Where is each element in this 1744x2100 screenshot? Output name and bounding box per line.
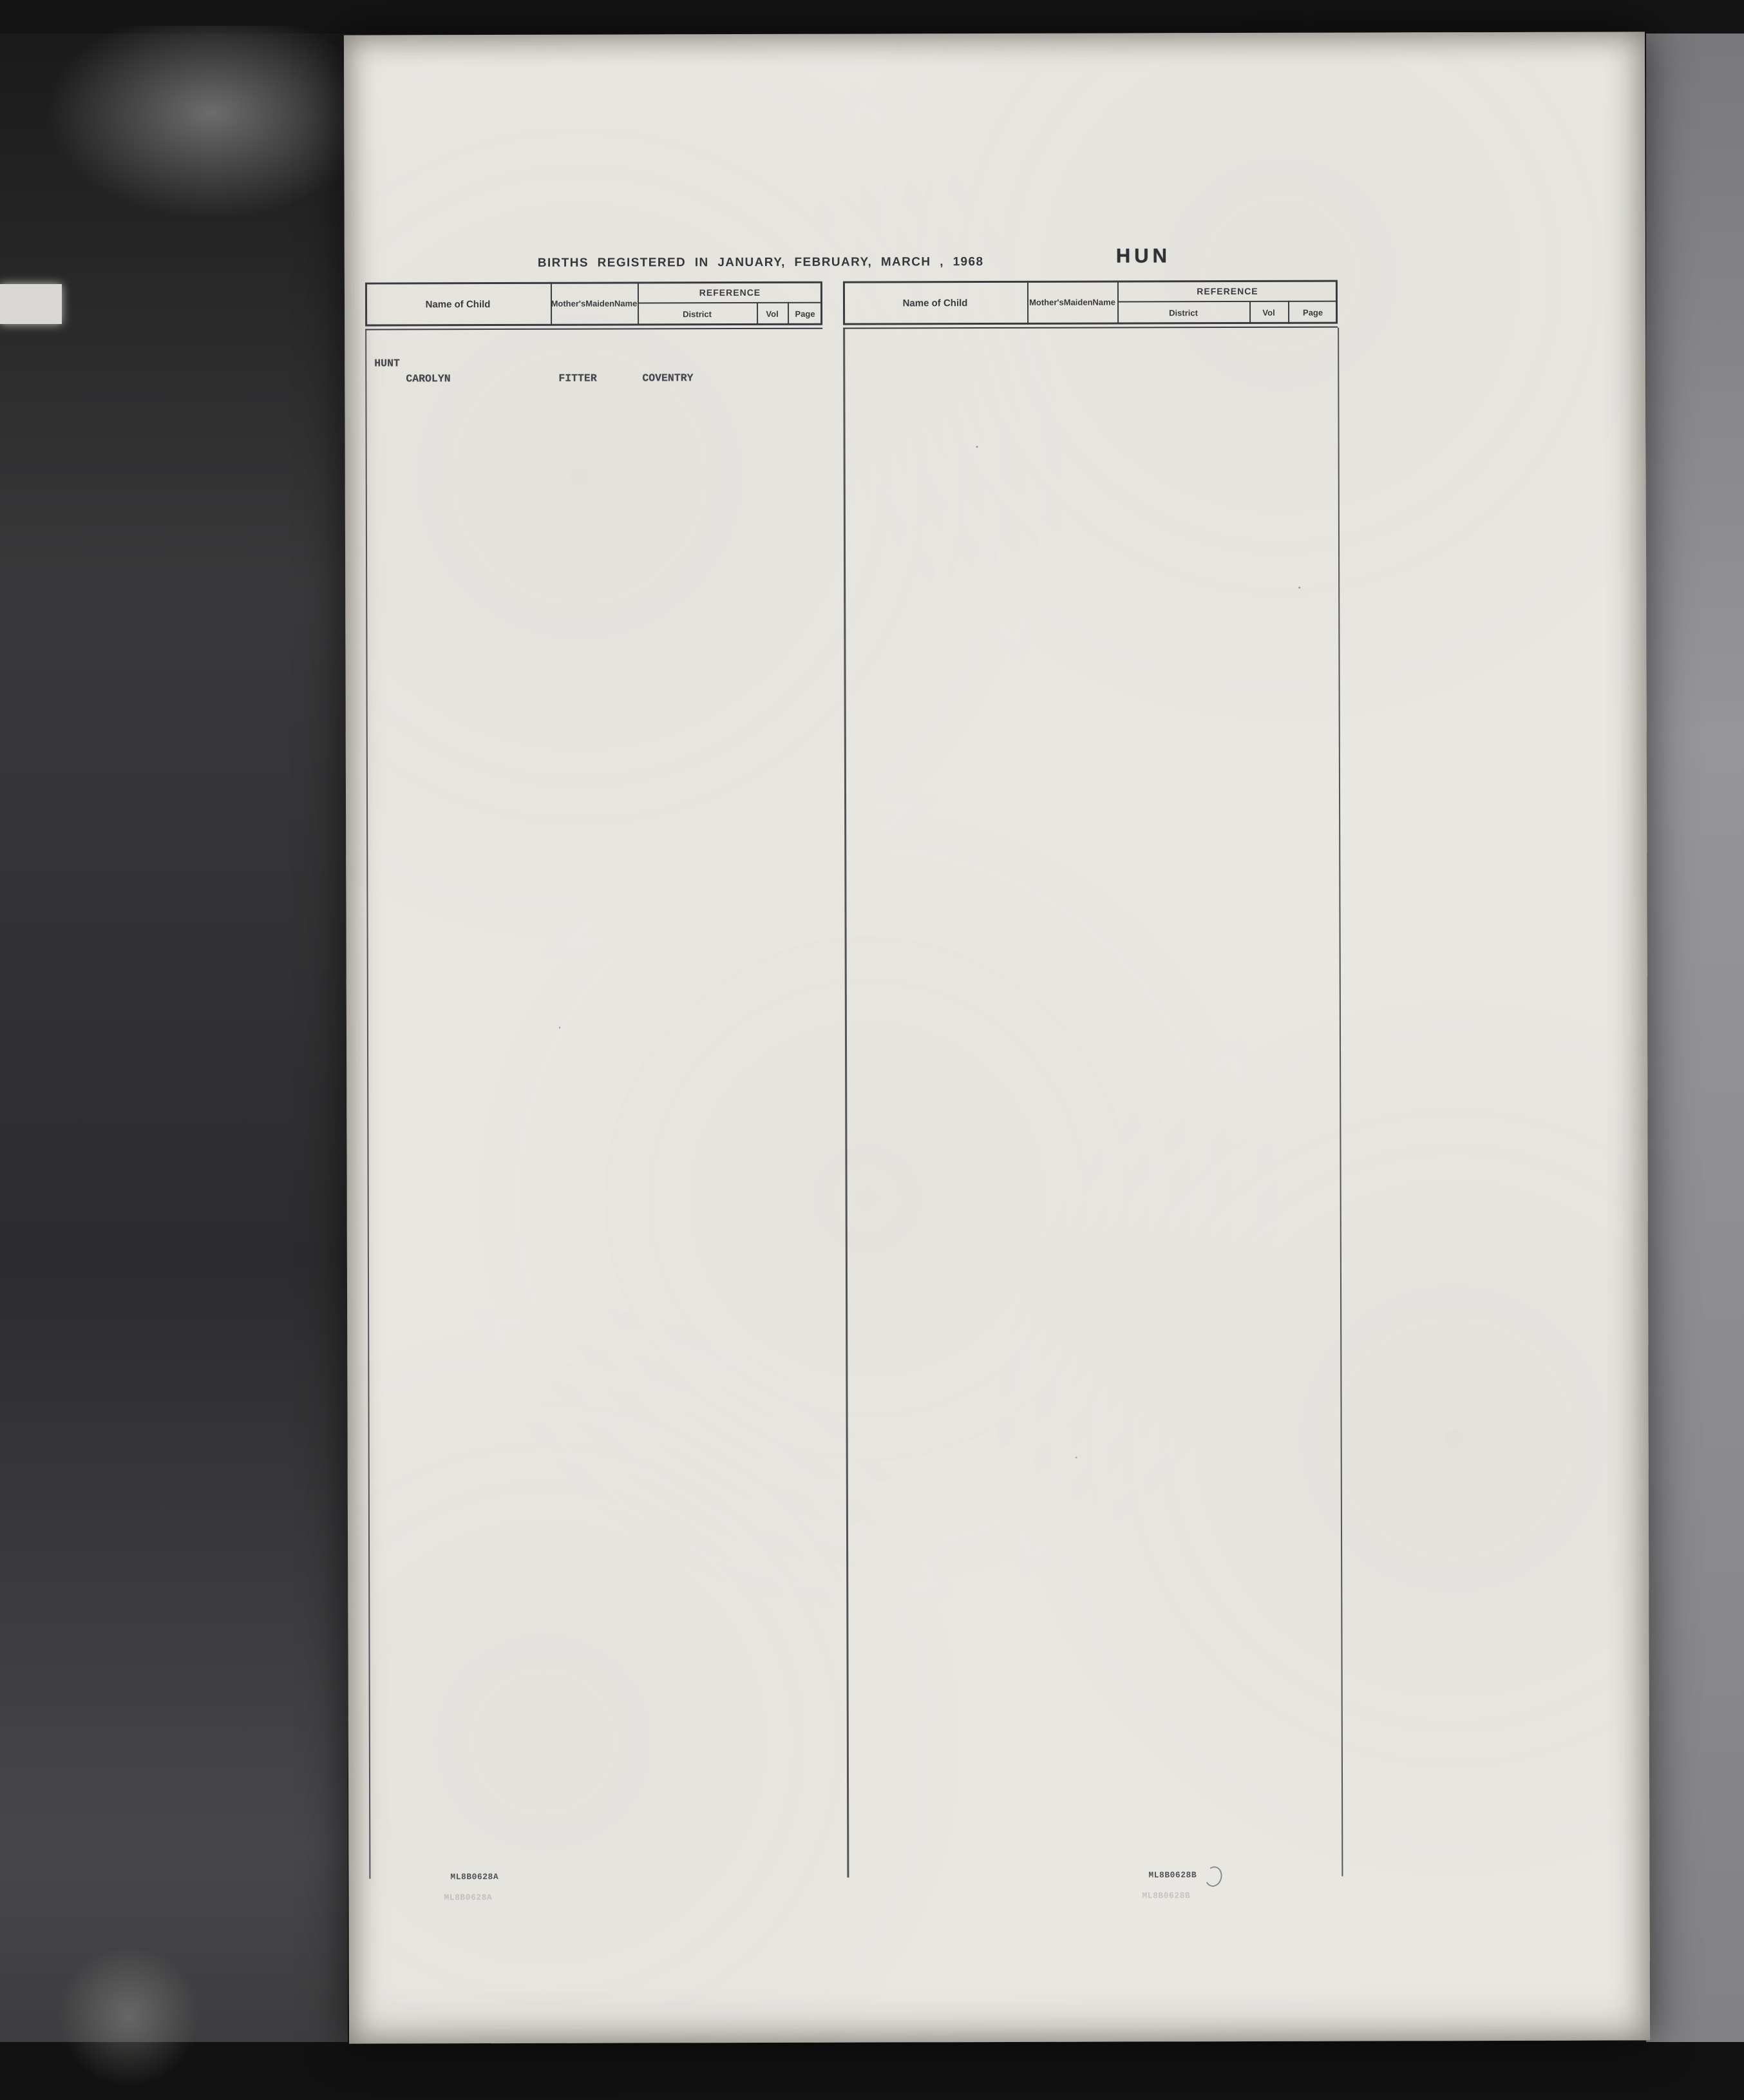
frame-stamp-right-ghost: ML8B0628B (1142, 1891, 1190, 1900)
mothers-maiden-name-line: Name (1093, 298, 1115, 307)
name-of-child-header: Name of Child (843, 281, 1027, 325)
paper-grain (344, 32, 1650, 2043)
mother-maiden-name: FITTER (558, 372, 596, 385)
surname-section-code: HUN (1116, 244, 1171, 267)
header-double-rule (843, 327, 1338, 329)
table-vertical-rule (843, 329, 849, 1878)
mothers-maiden-name-header: Mother'sMaidenName (551, 282, 638, 325)
surname-label-left: HUNT (374, 357, 400, 369)
dust-speck (1298, 587, 1300, 589)
page-header: Page (1288, 302, 1338, 323)
header-double-rule (365, 328, 822, 330)
dust-speck (976, 446, 978, 448)
mothers-maiden-name-header: Mother'sMaidenName (1027, 281, 1117, 325)
film-blotch (58, 1945, 200, 2087)
pencil-curve-mark (1203, 1864, 1224, 1888)
table-vertical-rule (1338, 328, 1343, 1876)
child-name: CAROLYN (406, 372, 450, 385)
film-blotch (45, 26, 348, 219)
register-page: BIRTHS REGISTERED IN JANUARY, FEBRUARY, … (344, 32, 1650, 2043)
film-sprocket-notch (0, 284, 62, 324)
reference-header: REFERENCE (1117, 283, 1338, 300)
film-border-right (1646, 0, 1744, 2100)
table-row: CAROLYNFITTERCOVENTRY (345, 369, 1645, 386)
mothers-maiden-name-line: Mother's (551, 300, 586, 309)
vol-header: Vol (1249, 302, 1288, 323)
frame-stamp-left-ghost: ML8B0628A (444, 1893, 492, 1902)
film-border-bottom (0, 2042, 1744, 2100)
mothers-maiden-name-line: Maiden (585, 300, 614, 309)
name-of-child-header: Name of Child (365, 282, 551, 327)
page-header: Page (788, 303, 822, 324)
reference-header: REFERENCE (638, 284, 822, 301)
district-header: District (1117, 302, 1249, 323)
vol-header: Vol (757, 303, 788, 324)
mothers-maiden-name-line: Maiden (1064, 298, 1093, 307)
district-header: District (638, 303, 757, 324)
mothers-maiden-name-line: Mother's (1029, 298, 1064, 307)
registration-district: COVENTRY (642, 372, 693, 384)
dust-speck (1076, 1457, 1077, 1458)
mothers-maiden-name-line: Name (614, 299, 637, 308)
table-vertical-rule (365, 330, 370, 1879)
dust-speck (559, 1027, 560, 1029)
page-title: BIRTHS REGISTERED IN JANUARY, FEBRUARY, … (538, 255, 984, 271)
frame-stamp-left: ML8B0628A (450, 1872, 498, 1882)
frame-stamp-right: ML8B0628B (1148, 1870, 1197, 1880)
microfilm-scan: BIRTHS REGISTERED IN JANUARY, FEBRUARY, … (0, 0, 1744, 2100)
